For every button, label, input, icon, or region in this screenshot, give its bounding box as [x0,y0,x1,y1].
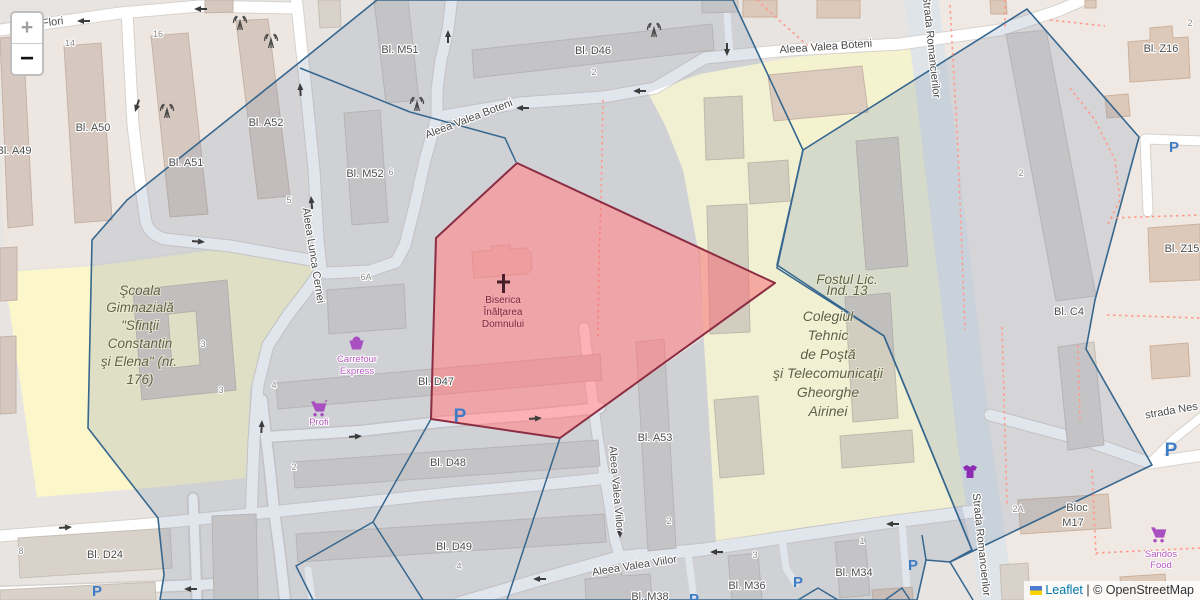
svg-text:"Sfinţii: "Sfinţii [121,318,160,333]
svg-text:P: P [1165,440,1178,461]
svg-text:5: 5 [286,195,291,205]
svg-text:Bl. M38: Bl. M38 [631,591,668,600]
svg-text:Bl. D24: Bl. D24 [87,549,123,561]
svg-text:de Poştă: de Poştă [800,346,855,362]
svg-text:Bl. M51: Bl. M51 [381,44,418,56]
svg-text:Bl. C4: Bl. C4 [1054,306,1084,318]
svg-text:2: 2 [291,462,296,472]
svg-text:P: P [1169,139,1179,156]
svg-text:P: P [454,406,467,427]
svg-text:6: 6 [388,167,393,177]
svg-text:Bl. M52: Bl. M52 [346,168,383,180]
svg-text:2: 2 [666,516,671,526]
svg-text:176): 176) [126,372,153,387]
svg-text:Bl. A50: Bl. A50 [76,122,111,134]
svg-text:3: 3 [200,339,205,349]
svg-text:Bl. D49: Bl. D49 [436,541,472,553]
svg-text:3: 3 [218,385,223,395]
svg-text:Bl. M34: Bl. M34 [835,567,872,579]
svg-text:M17: M17 [1062,517,1083,529]
svg-text:Domnului: Domnului [482,319,524,330]
svg-text:Express: Express [340,366,375,377]
svg-text:2: 2 [1018,168,1023,178]
svg-text:şi Telecomunicaţii: şi Telecomunicaţii [773,365,884,381]
svg-text:Bl. A52: Bl. A52 [249,117,284,129]
svg-text:Bl. M36: Bl. M36 [728,580,765,592]
svg-text:4: 4 [456,561,461,571]
svg-text:Ind. 13: Ind. 13 [826,283,868,298]
svg-text:P: P [92,583,102,600]
svg-text:14: 14 [65,38,75,48]
svg-text:Şcoala: Şcoala [119,283,161,298]
svg-text:Bloc: Bloc [1066,502,1088,514]
svg-text:2: 2 [1187,18,1192,28]
svg-text:Food: Food [1150,560,1172,571]
svg-text:4: 4 [271,380,276,390]
svg-text:3: 3 [752,550,757,560]
svg-text:Bl. D47: Bl. D47 [418,376,454,388]
svg-text:Înălţarea: Înălţarea [483,305,523,318]
svg-text:P: P [908,557,918,574]
svg-text:Bl. A49: Bl. A49 [0,145,31,157]
svg-text:Airinei: Airinei [808,403,849,419]
svg-text:6A: 6A [360,272,371,282]
svg-text:Gheorghe: Gheorghe [797,384,859,400]
svg-text:Biserica: Biserica [485,295,521,306]
svg-text:şi Elena" (nr.: şi Elena" (nr. [101,354,177,369]
svg-text:Colegiul: Colegiul [803,308,854,324]
svg-text:Bl. D48: Bl. D48 [430,457,466,469]
svg-text:Bl. Z16: Bl. Z16 [1144,43,1179,55]
svg-text:Bl. D46: Bl. D46 [575,45,611,57]
svg-text:Bl. Z15: Bl. Z15 [1165,243,1200,255]
svg-text:P: P [689,591,699,600]
svg-text:8: 8 [18,546,23,556]
svg-text:Carrefour: Carrefour [337,354,377,365]
svg-text:Profi: Profi [309,417,329,428]
svg-text:2A: 2A [1012,504,1023,514]
svg-text:Tehnic: Tehnic [808,327,849,343]
svg-text:Bl. A53: Bl. A53 [638,432,673,444]
svg-text:P: P [793,574,803,591]
svg-text:16: 16 [153,29,163,39]
svg-text:Sandos: Sandos [1145,549,1177,560]
svg-text:2: 2 [591,67,596,77]
svg-text:Constantin: Constantin [108,336,173,351]
svg-text:Bl. A51: Bl. A51 [169,157,204,169]
svg-text:1: 1 [859,536,864,546]
svg-text:Gimnazială: Gimnazială [106,300,174,315]
